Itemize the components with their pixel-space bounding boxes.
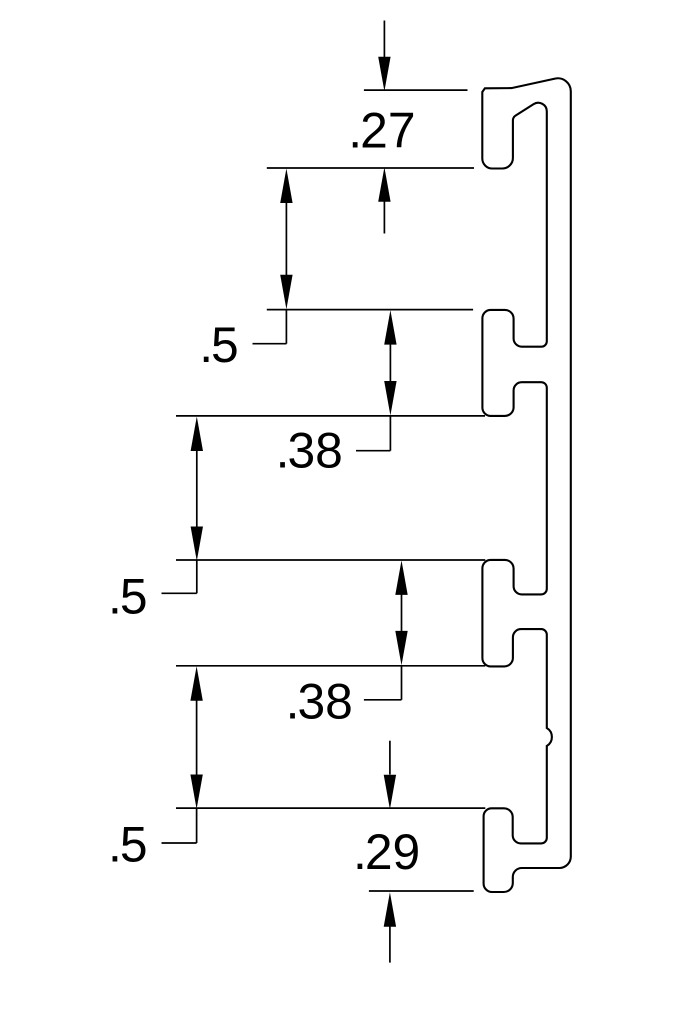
svg-text:.5: .5 <box>108 569 148 625</box>
svg-text:.5: .5 <box>108 817 148 873</box>
svg-text:.38: .38 <box>276 422 343 478</box>
svg-text:.38: .38 <box>286 674 353 730</box>
svg-text:.27: .27 <box>348 102 415 158</box>
svg-text:.5: .5 <box>199 317 239 373</box>
svg-text:.29: .29 <box>353 824 420 880</box>
